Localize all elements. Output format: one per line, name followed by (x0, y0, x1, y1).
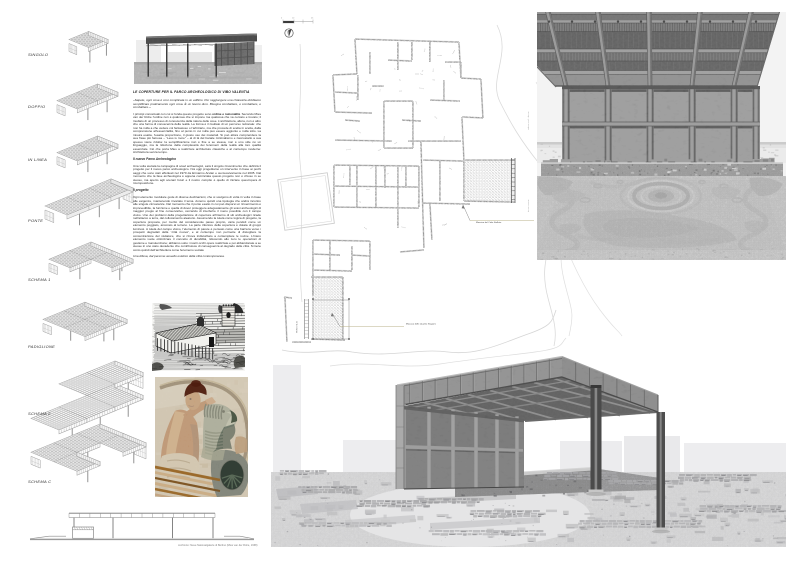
svg-text:confronto: Neue Nationalgaleri: confronto: Neue Nationalgalerie di Berli… (178, 543, 258, 547)
svg-text:Mosaico del Cielo Stellato: Mosaico del Cielo Stellato (476, 221, 502, 224)
svg-text:10: 10 (292, 18, 295, 20)
svg-text:SCHEMA 2: SCHEMA 2 (28, 411, 51, 416)
svg-text:terme romane: terme romane (527, 199, 530, 212)
svg-text:settore nord - domus: settore nord - domus (527, 112, 530, 130)
svg-text:SCHEMA 1: SCHEMA 1 (28, 277, 51, 282)
svg-text:DOPPIO: DOPPIO (28, 104, 45, 109)
svg-text:IN LINEA: IN LINEA (28, 157, 47, 162)
svg-text:0: 0 (281, 18, 283, 20)
svg-text:PADIGLIONE: PADIGLIONE (28, 344, 55, 349)
svg-text:Mosaico delle Quattro Stagioni: Mosaico delle Quattro Stagioni (406, 323, 436, 326)
svg-text:PONTE: PONTE (28, 218, 43, 223)
svg-text:SINGOLO: SINGOLO (28, 52, 48, 57)
svg-text:25: 25 (311, 18, 314, 20)
svg-text:SCHEMA C: SCHEMA C (28, 479, 51, 484)
svg-text:PERISTILIO: PERISTILIO (297, 321, 299, 333)
